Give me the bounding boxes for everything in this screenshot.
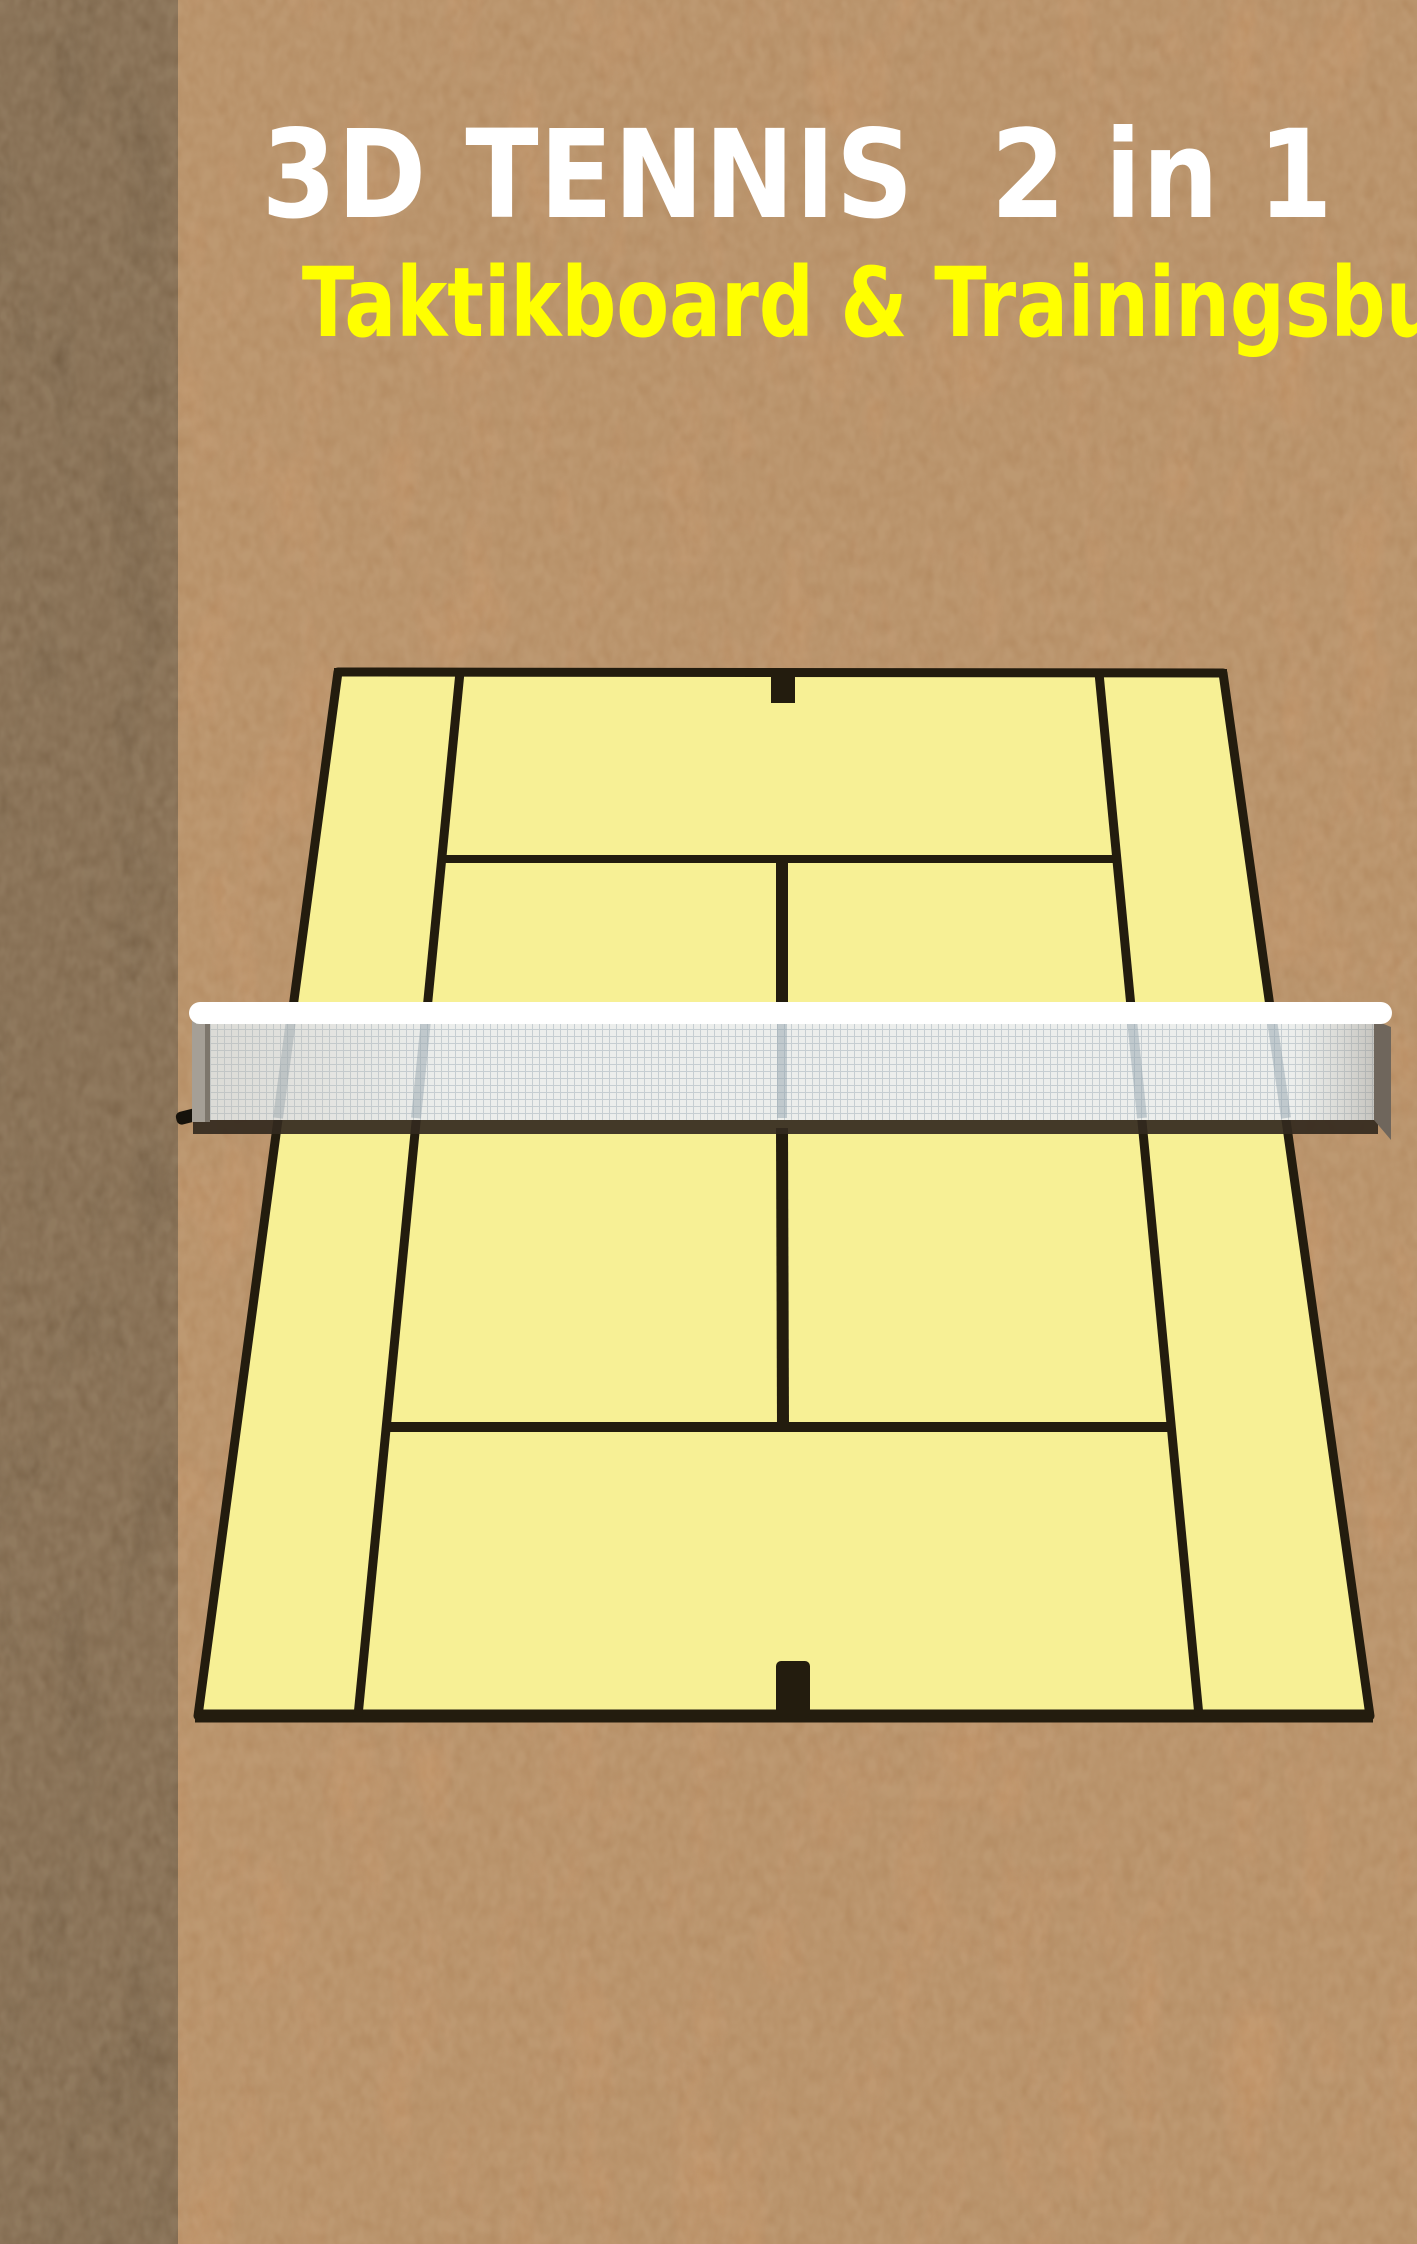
net-top-band (189, 1002, 1392, 1024)
net-left-cap-shade (205, 1020, 210, 1122)
baseline-far (334, 672, 1227, 673)
tennis-net (175, 1002, 1392, 1140)
center-mark-far (771, 673, 795, 703)
center-mark-near (776, 1661, 810, 1718)
tennis-court-illustration (0, 0, 1417, 2244)
center-service-line-near (782, 1128, 783, 1427)
net-right-cap-shadow (1374, 1020, 1391, 1140)
net-mesh-shading (196, 1020, 1374, 1120)
book-cover: 3D TENNIS 2 in 1 Taktikboard & Trainings… (0, 0, 1417, 2244)
